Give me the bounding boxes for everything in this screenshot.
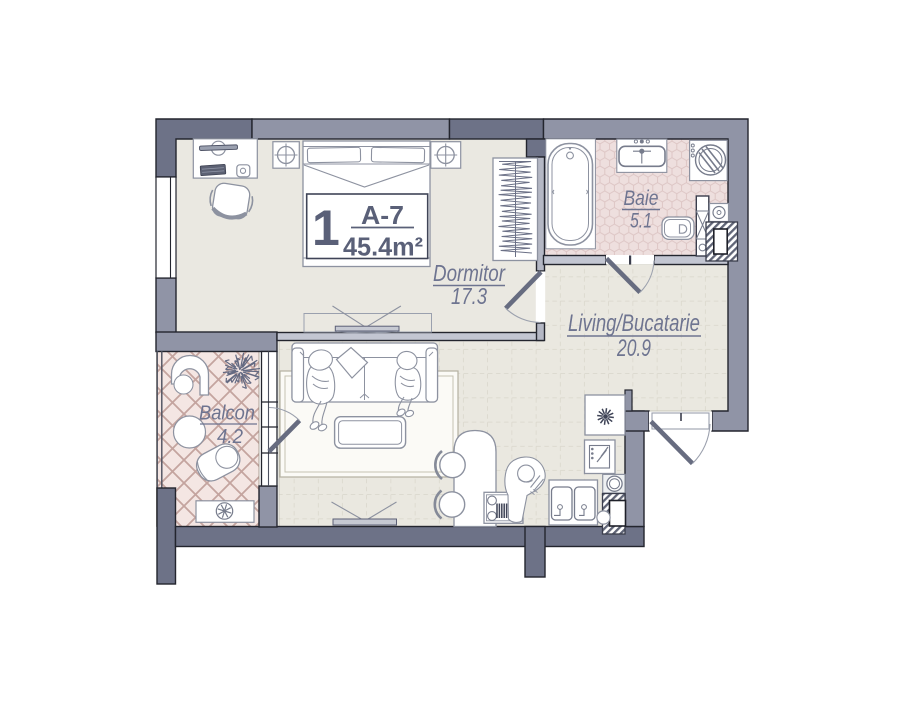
- svg-text:45.4m²: 45.4m²: [343, 232, 423, 262]
- svg-text:A-7: A-7: [361, 200, 404, 230]
- svg-text:4.2: 4.2: [217, 426, 243, 448]
- svg-text:5.1: 5.1: [630, 210, 652, 233]
- svg-text:Living/Bucatarie: Living/Bucatarie: [568, 310, 700, 337]
- svg-text:Baie: Baie: [624, 187, 659, 210]
- svg-text:1: 1: [312, 200, 340, 256]
- svg-text:20.9: 20.9: [616, 335, 651, 362]
- svg-text:17.3: 17.3: [451, 283, 487, 309]
- svg-text:Balcon: Balcon: [199, 403, 255, 425]
